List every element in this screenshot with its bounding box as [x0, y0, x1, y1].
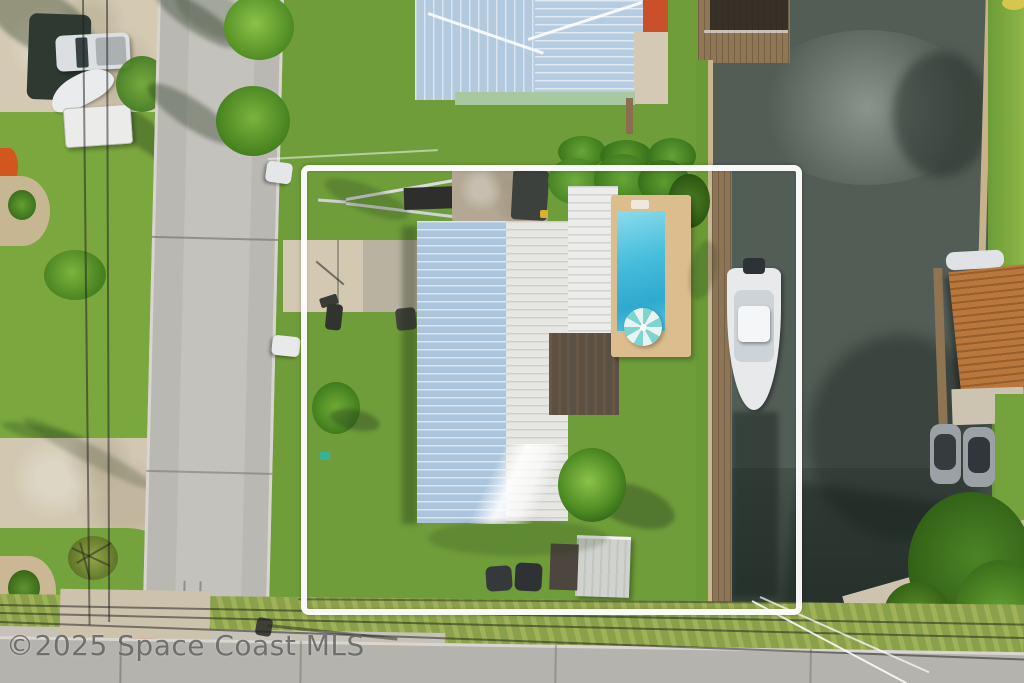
street-south-seam-4 [809, 649, 812, 683]
garden-plant [8, 190, 36, 220]
aerial-photo: ©2025 Space Coast MLS [0, 0, 1024, 683]
jet-ski-2-cover [968, 437, 990, 473]
boat-lift-frame [710, 0, 788, 30]
neighbor-deck-strip [455, 92, 635, 105]
north-dock [698, 0, 790, 63]
shrub-west-lawn [44, 250, 106, 300]
roadside-palm-2 [216, 86, 290, 156]
neighbor-roof-top-right-section [535, 0, 645, 100]
neighbor-roof-orange [948, 264, 1024, 402]
jet-ski-1 [930, 424, 961, 484]
street-south-seam-3 [554, 645, 557, 683]
dock-rail [704, 30, 788, 33]
neighbor-patio-top [634, 32, 668, 104]
roadside-palm-1 [224, 0, 294, 60]
jet-ski-2 [963, 427, 995, 487]
jet-ski-1-cover [934, 434, 956, 470]
parked-car-1 [265, 160, 294, 184]
parked-car-2 [271, 335, 301, 358]
east-bank-grass [988, 0, 1024, 268]
mls-watermark: ©2025 Space Coast MLS [6, 629, 365, 662]
tree-shadow-water-1 [893, 52, 991, 177]
fence-post-top [626, 98, 633, 134]
neighbor-roof-orange-section [643, 0, 668, 34]
utility-trailer [63, 104, 134, 149]
crossing-wire-top [268, 149, 438, 159]
property-boundary [301, 165, 802, 615]
